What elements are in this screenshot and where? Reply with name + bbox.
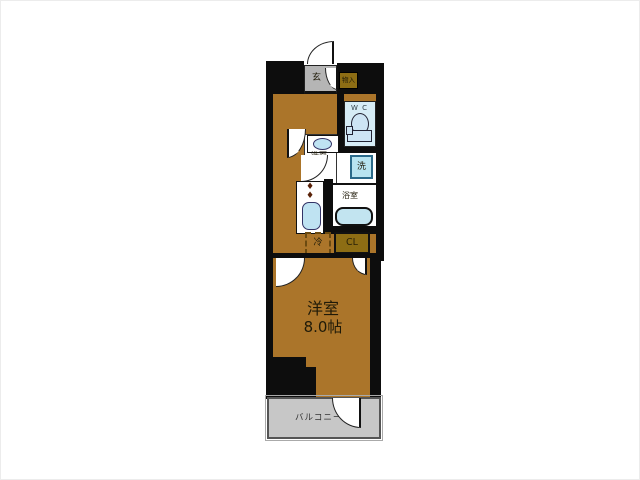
wall-bottom-left-b <box>306 367 316 399</box>
wall-right-upper <box>376 63 384 261</box>
kitchen-counter: ♦ ♦ <box>296 181 324 234</box>
bathroom: 浴室 <box>333 183 376 226</box>
balcony-label: バルコニー <box>295 414 342 423</box>
refrigerator-space: 冷 <box>305 232 331 255</box>
stove-burners-icon: ♦ ♦ <box>306 183 314 201</box>
main-room-size: 8.0帖 <box>283 320 363 335</box>
main-room-label: 洋室 <box>283 301 363 317</box>
washer-label: 洗 <box>357 163 366 172</box>
wall-kitchen-bath <box>324 179 333 234</box>
wall-bottom-left-a <box>273 357 306 399</box>
balcony: バルコニー <box>267 397 381 439</box>
wc-room: W C <box>344 101 376 147</box>
closet-label: CL <box>346 238 358 248</box>
main-room-label-group: 洋室 8.0帖 <box>283 301 363 335</box>
closet: CL <box>334 232 370 254</box>
bathtub-icon <box>335 207 373 226</box>
bathroom-label: 浴室 <box>342 192 358 200</box>
sink-icon <box>313 138 332 150</box>
wc-label: W C <box>351 105 368 112</box>
entrance-door-arc <box>307 41 334 64</box>
wall-left <box>266 61 273 399</box>
kitchen-sink-icon <box>302 202 321 230</box>
storage-closet: 物入 <box>339 72 358 89</box>
storage-label: 物入 <box>342 77 355 84</box>
washing-machine: 洗 <box>350 155 373 179</box>
wall-right-lower <box>370 256 381 399</box>
entrance-label: 玄 <box>312 74 321 83</box>
refrigerator-label: 冷 <box>313 239 322 248</box>
floor-plan-canvas: 玄 物入 W C 洗面 洗 ♦ ♦ 浴室 <box>0 0 640 480</box>
